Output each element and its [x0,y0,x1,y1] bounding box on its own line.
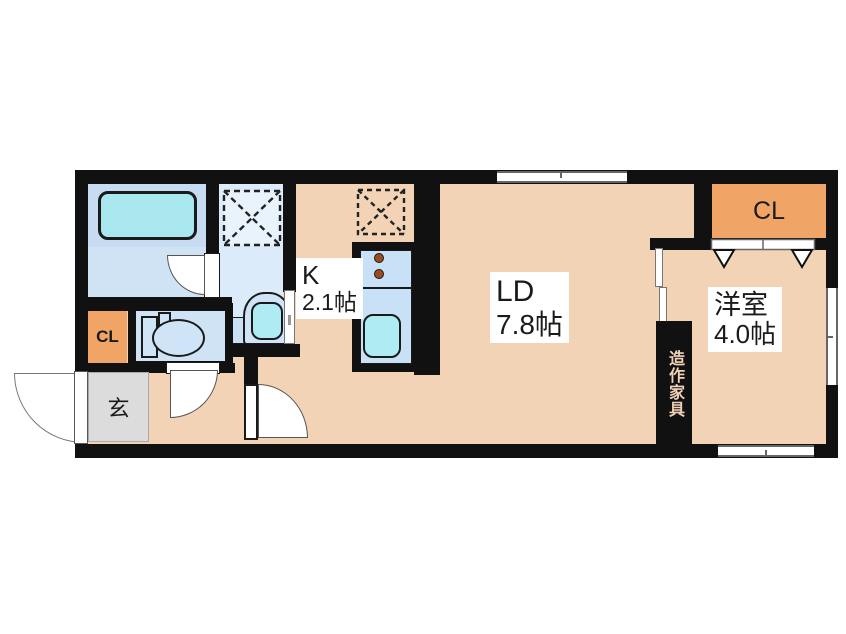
living-dining-label: LD [496,275,563,309]
kitchen-label-box: K 2.1帖 [296,258,363,319]
washroom-sliding-door-track [288,315,291,325]
closet-right-label: CL [753,197,785,226]
wall-hall-ld-stub [244,344,258,386]
toilet-bowl [152,319,205,357]
bedroom-label-box: 洋室 4.0帖 [708,287,782,352]
bathtub [98,191,197,240]
refrigerator-area-icon [355,187,407,237]
bedroom-size: 4.0帖 [714,320,776,349]
built-in-furniture-label: 造作家具 [662,350,686,418]
washbasin-bowl [251,302,283,340]
closet-left: CL [88,311,127,363]
floor-plan: CL 玄 造作家具 CL [0,0,846,634]
closet-folding-door-icon [710,238,816,270]
living-dining-size: 7.8帖 [496,309,563,340]
built-in-furniture-column: 造作家具 [656,321,692,446]
wall-washroom-right [283,170,296,292]
closet-right: CL [712,184,826,238]
kitchen-sink [363,314,401,358]
window-top-tick [560,171,562,178]
entrance-floor: 玄 [88,372,149,442]
living-dining-label-box: LD 7.8帖 [490,272,569,343]
window-top [497,171,627,183]
bedroom-sliding-door-panel [659,287,667,323]
stove-burner-icon [374,253,384,263]
bedroom-label: 洋室 [714,290,776,320]
closet-left-label: CL [96,327,119,347]
window-bottom-tick [765,450,767,457]
entry-door-leaf [74,371,88,444]
stove-burner-icon [374,269,384,279]
kitchen-label: K [302,261,357,290]
ld-door-leaf [244,384,258,440]
kitchen-counter-divider [361,287,411,289]
bathroom-door-leaf [204,253,220,298]
kitchen-size: 2.1帖 [302,290,357,316]
window-right-tick [826,336,833,338]
entrance-label: 玄 [107,391,129,423]
washing-machine-area-icon [221,188,283,248]
bedroom-sliding-door-panel [655,248,663,287]
